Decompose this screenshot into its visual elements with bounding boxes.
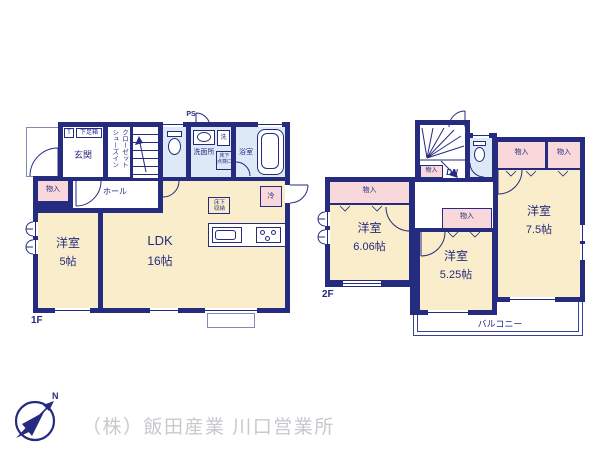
shoe-t-box: T	[64, 128, 74, 138]
window	[325, 212, 330, 226]
storage-1f-label: 物入	[38, 186, 68, 194]
casement-window-icon	[26, 240, 33, 254]
storage-2f-b-label: 物入	[548, 149, 580, 157]
terrace-outline	[207, 313, 255, 328]
back-door-gap	[285, 185, 290, 203]
window	[55, 308, 90, 313]
floor-plan-canvas: T 下足箱 玄関 シューズインクローゼット UP 洗 洗面所 床下点検口 浴室 …	[0, 0, 600, 450]
stairs-1f	[133, 127, 158, 178]
window	[150, 308, 178, 313]
entrance-label: 玄関	[63, 150, 103, 160]
underfloor-storage-box: 床下収納	[208, 197, 230, 214]
window	[325, 230, 330, 244]
toilet-tank-icon	[167, 131, 182, 137]
stairs-dn-label: DN	[440, 168, 464, 177]
western-room-525-name: 洋室	[420, 250, 492, 264]
western-room-606-name: 洋室	[330, 222, 409, 236]
western-room-525-size: 5.25帖	[420, 269, 492, 282]
casement-window-icon	[26, 222, 33, 236]
window	[473, 133, 489, 138]
window	[163, 122, 183, 127]
toilet-bowl-icon	[168, 138, 181, 155]
door-arc-backdoor	[290, 185, 308, 203]
toilet-bowl-icon	[474, 147, 485, 162]
western-room-5-size: 5帖	[38, 256, 98, 269]
window	[428, 310, 468, 315]
casement-window-icon	[318, 230, 325, 244]
ps-label: PS	[182, 111, 200, 119]
window	[33, 222, 38, 236]
fridge-box: 冷	[260, 186, 282, 207]
compass-icon: N	[8, 386, 64, 448]
casement-window-icon	[318, 212, 325, 226]
storage-2f-a-label: 物入	[498, 149, 545, 157]
window	[510, 297, 555, 302]
compass-north-label: N	[52, 391, 59, 401]
western-room-75-size: 7.5帖	[498, 224, 580, 237]
window	[580, 225, 585, 241]
window	[258, 122, 282, 127]
shoes-closet-label: シューズインクローゼット	[109, 129, 129, 176]
washer-box: 洗	[217, 130, 230, 146]
storage-2f-c-label: 物入	[442, 213, 492, 221]
window	[33, 240, 38, 254]
sink-basin-icon	[197, 132, 211, 142]
stove-icon	[256, 227, 281, 243]
ldk-size: 16帖	[120, 255, 200, 269]
toilet-tank-icon	[473, 141, 486, 146]
bathtub-icon	[257, 129, 284, 175]
bathroom-label: 浴室	[234, 149, 258, 157]
balcony-label: バルコニー	[440, 319, 560, 329]
kitchen-sink-icon	[212, 227, 242, 243]
floor2-label: 2F	[322, 289, 342, 301]
window	[343, 281, 381, 286]
hall-label: ホール	[92, 187, 138, 196]
ldk-name: LDK	[120, 234, 200, 249]
shoe-box: 下足箱	[76, 128, 102, 138]
western-room-606-size: 6.06帖	[330, 241, 409, 254]
washroom-label: 洗面所	[189, 149, 219, 157]
floor1-label: 1F	[31, 315, 51, 327]
porch-outline	[26, 127, 59, 177]
window	[580, 244, 585, 260]
western-room-5-name: 洋室	[38, 237, 98, 251]
company-name: （株）飯田産業 川口営業所	[82, 412, 562, 439]
storage-2f-left-label: 物入	[330, 187, 409, 195]
western-room-75-name: 洋室	[498, 205, 580, 219]
underfloor-access-box: 床下点検口	[216, 151, 232, 170]
